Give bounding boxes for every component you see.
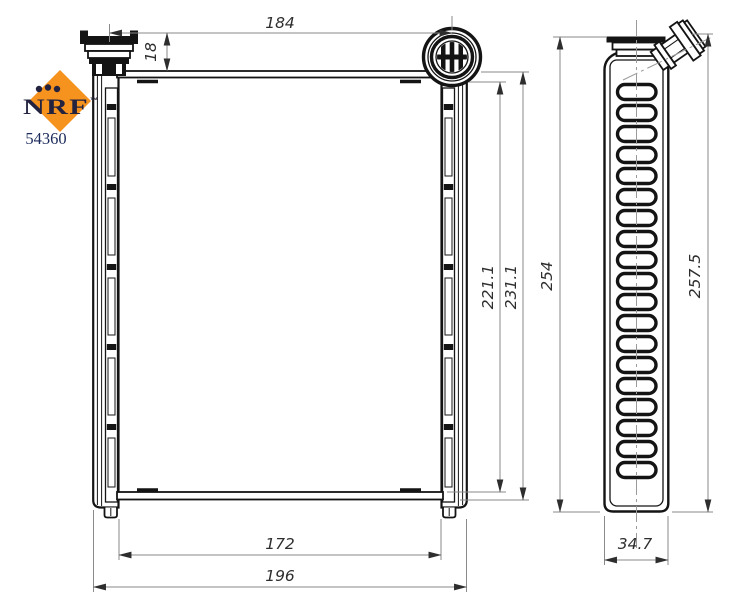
logo-trademark: ™ (90, 96, 98, 105)
nrf-logo: NRF ™ 54360 (23, 70, 98, 148)
dim-label-347: 34.7 (618, 535, 653, 553)
outlet-port (424, 29, 481, 86)
tank-left (93, 66, 118, 518)
technical-drawing-page: 184 18 221.1 231.1 172 196 254 257. (0, 0, 737, 600)
core-bottom-band (117, 492, 443, 500)
dim-label-172: 172 (265, 535, 295, 553)
dim-label-196: 196 (265, 567, 295, 585)
tank-right (442, 66, 467, 518)
front-view (80, 29, 481, 518)
dim-label-231: 231.1 (502, 265, 520, 309)
part-number: 54360 (25, 129, 66, 148)
heater-core-drawing: 184 18 221.1 231.1 172 196 254 257. (0, 0, 737, 600)
dim-label-257: 257.5 (686, 254, 704, 298)
dim-label-221: 221.1 (479, 265, 497, 309)
logo-wordmark: NRF (23, 94, 89, 119)
dim-label-184: 184 (265, 14, 295, 32)
core-top-band (117, 71, 443, 78)
dim-label-18: 18 (142, 42, 160, 62)
dim-label-254: 254 (538, 261, 556, 291)
